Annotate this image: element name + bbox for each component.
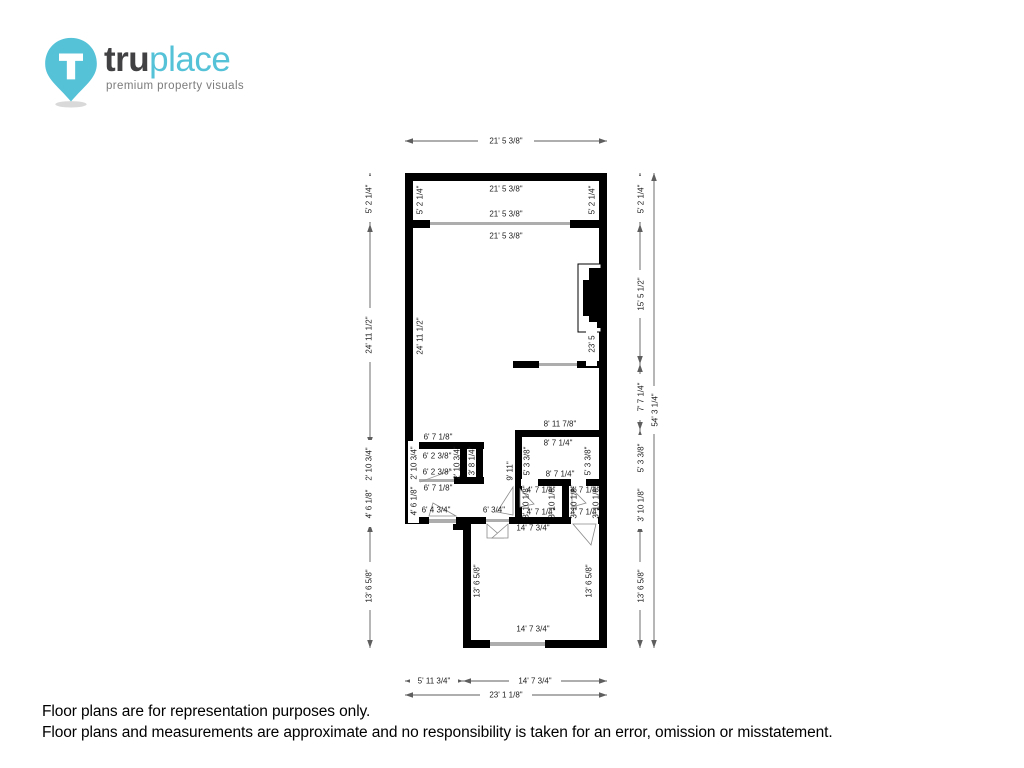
dim-right-2: 15' 5 1/2" bbox=[637, 277, 646, 310]
dim-closet-left: 2' 10 3/4" bbox=[410, 446, 419, 479]
dim-bottom-total: 23' 1 1/8" bbox=[489, 691, 522, 700]
dim-right-1: 5' 2 1/4" bbox=[637, 184, 646, 213]
dim-bottom-seg2: 14' 7 3/4" bbox=[518, 677, 551, 686]
dim-closet-width-1: 6' 2 3/8" bbox=[423, 452, 452, 461]
disclaimer-line-2: Floor plans and measurements are approxi… bbox=[42, 724, 833, 742]
dim-right-4: 5' 3 3/8" bbox=[637, 443, 646, 472]
dim-room1-left: 5' 2 1/4" bbox=[416, 185, 425, 214]
dim-room1-right: 5' 2 1/4" bbox=[588, 185, 597, 214]
walls bbox=[405, 173, 607, 648]
dim-sr1-right: 3' 10 1/8" bbox=[548, 485, 557, 518]
dim-bottomroom-top: 14' 7 3/4" bbox=[516, 524, 549, 533]
dim-hall-left: 4' 6 1/8" bbox=[410, 486, 419, 515]
dim-door-mid: 6' 3/4" bbox=[483, 506, 505, 515]
dim-bottomroom-left: 13' 6 5/8" bbox=[473, 564, 482, 597]
disclaimer-line-1: Floor plans are for representation purpo… bbox=[42, 703, 833, 721]
dim-closet-width-2: 6' 2 3/8" bbox=[423, 468, 452, 477]
dim-chase: 3' 8 1/4" bbox=[468, 446, 477, 475]
dim-main-left: 24' 11 1/2" bbox=[416, 317, 425, 354]
dim-bath-left: 5' 3 3/8" bbox=[523, 446, 532, 475]
dim-right-3: 7' 7 1/4" bbox=[637, 382, 646, 411]
dim-bath-top-inner: 8' 7 1/4" bbox=[544, 439, 573, 448]
dim-fireplace: 23' 5 bbox=[588, 335, 597, 353]
dim-hall: 9' 11" bbox=[506, 461, 515, 481]
dim-door-left: 6' 4 3/4" bbox=[422, 506, 451, 515]
dim-sr1-left: 3' 10 1/8" bbox=[522, 485, 531, 518]
dim-left-1: 5' 2 1/4" bbox=[365, 184, 374, 213]
dim-bottomroom-bottom: 14' 7 3/4" bbox=[516, 625, 549, 634]
dim-left-3: 2' 10 3/4" bbox=[365, 447, 374, 480]
dim-closet-top-outer: 6' 7 1/8" bbox=[424, 433, 453, 442]
dim-left-2: 24' 11 1/2" bbox=[365, 316, 374, 353]
dim-closet-right: 2' 10 3/4" bbox=[453, 446, 462, 479]
floor-plan: 21' 5 3/8" 21' 5 3/8" 5' 2 1/4" 5' 2 1/4… bbox=[0, 0, 1024, 768]
dim-right-6: 13' 6 5/8" bbox=[637, 569, 646, 602]
dim-left-4: 4' 6 1/8" bbox=[365, 489, 374, 518]
fireplace bbox=[578, 264, 607, 332]
dim-room1-width: 21' 5 3/8" bbox=[489, 185, 522, 194]
dim-bath-right: 5' 3 3/8" bbox=[584, 446, 593, 475]
dim-bottom-seg1: 5' 11 3/4" bbox=[418, 677, 451, 686]
disclaimer: Floor plans are for representation purpo… bbox=[42, 703, 833, 745]
dim-bath-bottom: 8' 7 1/4" bbox=[546, 470, 575, 479]
dim-right-total: 54' 3 1/4" bbox=[651, 393, 660, 426]
dim-sr2-left: 3' 10 1/8" bbox=[570, 485, 579, 518]
dim-above-divider: 21' 5 3/8" bbox=[489, 210, 522, 219]
dim-bath-top-outer: 8' 11 7/8" bbox=[544, 420, 577, 429]
dim-bottomroom-right: 13' 6 5/8" bbox=[585, 564, 594, 597]
dim-right-5: 3' 10 1/8" bbox=[637, 488, 646, 521]
dim-sr2-right: 3' 10 1/8" bbox=[592, 485, 601, 518]
dim-below-divider: 21' 5 3/8" bbox=[489, 232, 522, 241]
dim-left-5: 13' 6 5/8" bbox=[365, 569, 374, 602]
dim-top-width: 21' 5 3/8" bbox=[489, 137, 522, 146]
dim-closet-bottom: 6' 7 1/8" bbox=[424, 484, 453, 493]
page: truplace premium property visuals bbox=[0, 0, 1024, 768]
